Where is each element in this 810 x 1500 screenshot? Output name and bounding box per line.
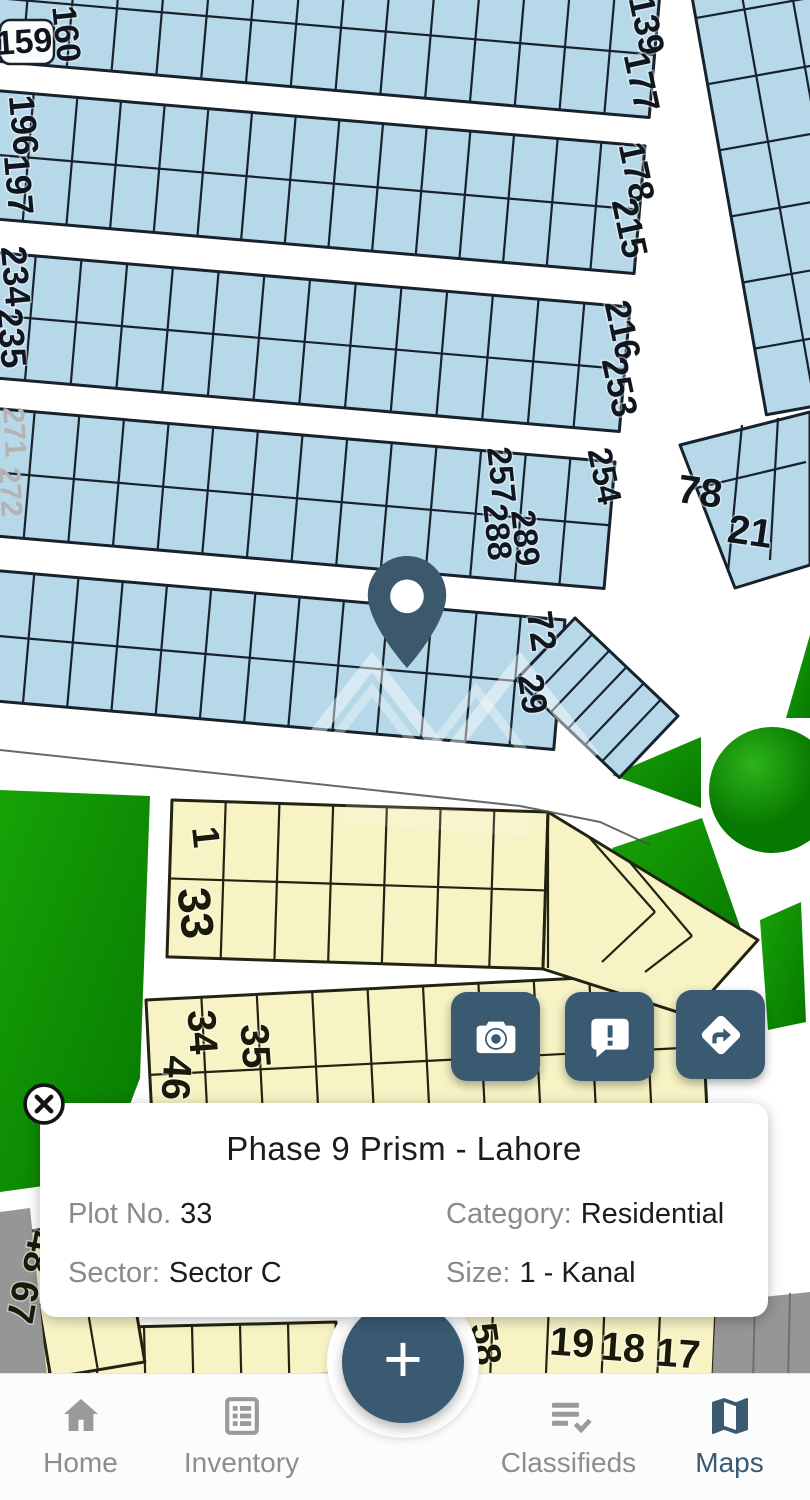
home-icon bbox=[57, 1392, 105, 1440]
plot-number: 34 bbox=[179, 1008, 226, 1056]
inventory-icon bbox=[218, 1392, 266, 1440]
close-card-button[interactable] bbox=[21, 1081, 67, 1127]
plus-icon: + bbox=[383, 1320, 423, 1398]
camera-button[interactable] bbox=[451, 992, 540, 1081]
plot-info-fields: Plot No.33 Category:Residential Sector:S… bbox=[40, 1198, 768, 1290]
nav-label: Classifieds bbox=[501, 1447, 636, 1479]
plot-info-card: Phase 9 Prism - Lahore Plot No.33 Catego… bbox=[40, 1103, 768, 1317]
plot-number: 272 bbox=[0, 466, 28, 518]
field-size: Size:1 - Kanal bbox=[446, 1257, 768, 1290]
nav-label: Home bbox=[43, 1447, 118, 1479]
plot-number: 17 bbox=[654, 1331, 701, 1378]
plot-number: 197 bbox=[0, 153, 42, 216]
field-category: Category:Residential bbox=[446, 1198, 768, 1231]
plot-number: 271 bbox=[0, 406, 32, 458]
directions-button[interactable] bbox=[676, 990, 765, 1079]
nav-label: Inventory bbox=[184, 1447, 299, 1479]
plot-number: 196 bbox=[1, 93, 47, 156]
plot-number: 234 bbox=[0, 244, 39, 307]
classifieds-icon bbox=[545, 1392, 593, 1440]
plot-number: 72 bbox=[519, 608, 565, 653]
nav-item-classifieds[interactable]: Classifieds bbox=[488, 1374, 649, 1500]
nav-label: Maps bbox=[695, 1447, 763, 1479]
plot-number: 33 bbox=[167, 885, 224, 941]
camera-icon bbox=[468, 1009, 524, 1065]
plot-number: 46 bbox=[153, 1054, 200, 1101]
plot-number: 159 bbox=[0, 21, 54, 63]
maps-screen: 1591601391771961971782152342352162532712… bbox=[0, 0, 810, 1500]
plot-number: 18 bbox=[599, 1325, 646, 1372]
plot-number: 21 bbox=[725, 507, 775, 557]
plot-number: 35 bbox=[232, 1022, 279, 1069]
plot-number: 78 bbox=[675, 467, 725, 517]
plot-number: 257 bbox=[479, 445, 523, 505]
plot-number: 19 bbox=[548, 1320, 595, 1367]
plot-info-title: Phase 9 Prism - Lahore bbox=[40, 1130, 768, 1168]
nav-item-inventory[interactable]: Inventory bbox=[161, 1374, 322, 1500]
field-sector: Sector:Sector C bbox=[68, 1257, 446, 1290]
field-plot-no: Plot No.33 bbox=[68, 1198, 446, 1231]
feedback-icon bbox=[582, 1009, 638, 1065]
plot-number: 235 bbox=[0, 306, 35, 369]
plot-number: 289 bbox=[503, 508, 547, 568]
close-icon bbox=[21, 1081, 67, 1127]
plot-number: 160 bbox=[44, 4, 88, 64]
directions-icon bbox=[693, 1007, 749, 1063]
nav-item-home[interactable]: Home bbox=[0, 1374, 161, 1500]
feedback-button[interactable] bbox=[565, 992, 654, 1081]
maps-icon bbox=[706, 1392, 754, 1440]
add-button[interactable]: + bbox=[342, 1301, 464, 1423]
plot-number: 29 bbox=[510, 671, 556, 716]
nav-item-maps[interactable]: Maps bbox=[649, 1374, 810, 1500]
plot-number: 1 bbox=[183, 824, 227, 849]
